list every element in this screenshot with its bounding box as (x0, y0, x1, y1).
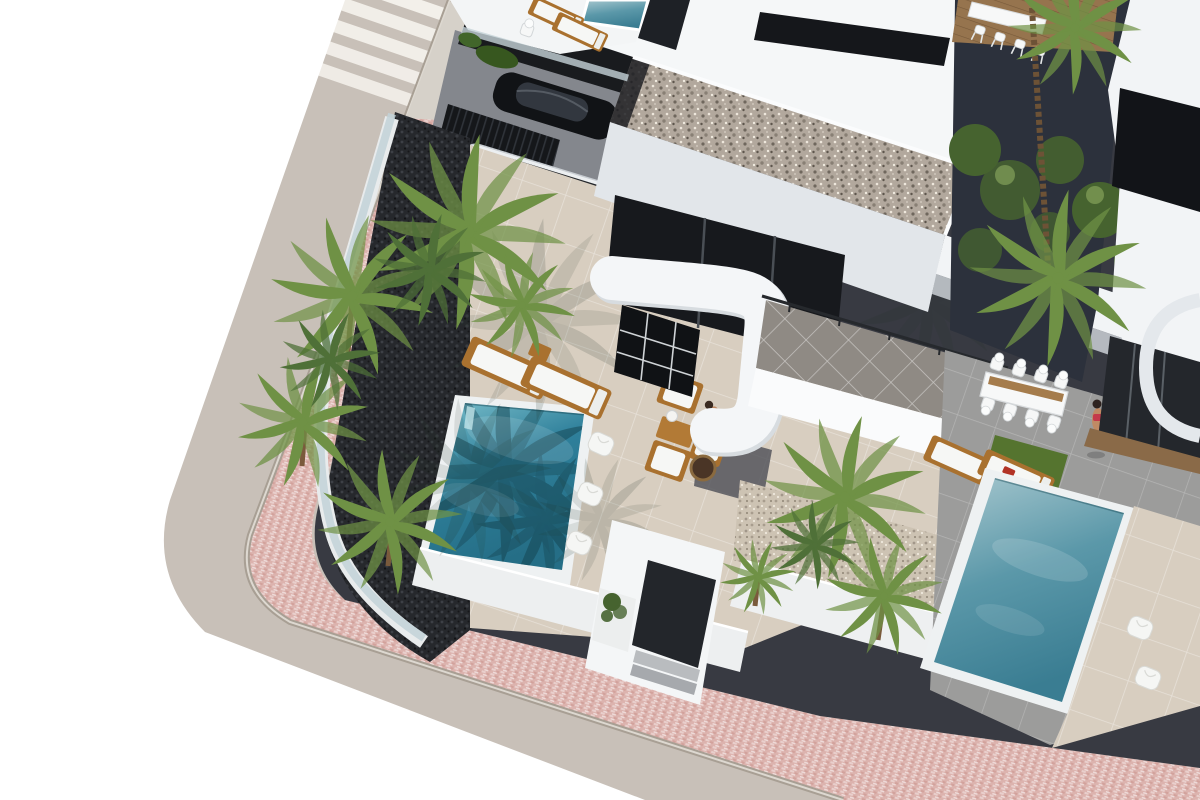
right-villa (920, 0, 1200, 748)
woman-hair (1093, 400, 1102, 409)
person-hair (705, 401, 713, 409)
villa-aerial-render (0, 0, 1200, 800)
render-canvas (0, 0, 1200, 800)
floor-lamp (667, 411, 678, 422)
fire-bowl (691, 456, 715, 480)
